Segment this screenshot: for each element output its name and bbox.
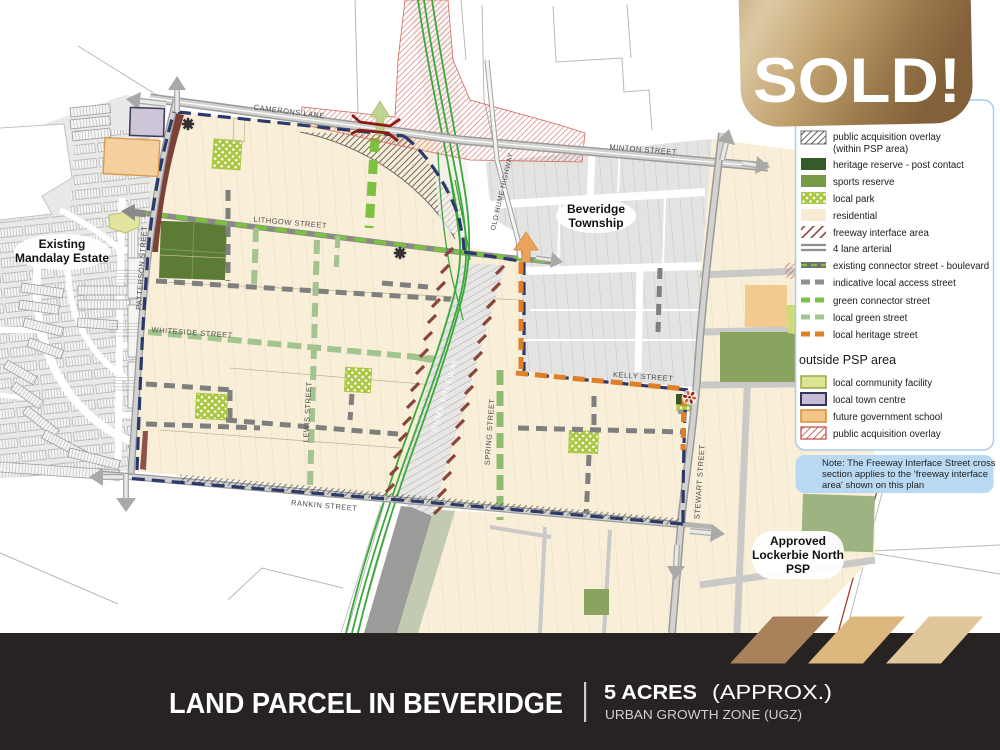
svg-text:Mandalay Estate: Mandalay Estate: [15, 251, 109, 265]
svg-text:local green street: local green street: [833, 313, 908, 324]
svg-text:URBAN GROWTH ZONE (UGZ): URBAN GROWTH ZONE (UGZ): [605, 708, 802, 722]
svg-text:existing connector street - bo: existing connector street - boulevard: [833, 261, 989, 272]
svg-text:Note: The Freeway Interface St: Note: The Freeway Interface Street cross: [822, 458, 996, 469]
svg-text:section applies to the 'freewa: section applies to the 'freeway interfac…: [822, 469, 988, 480]
svg-text:Township: Township: [568, 216, 623, 230]
svg-text:5 ACRES: 5 ACRES: [604, 682, 697, 704]
svg-text:outside PSP area: outside PSP area: [799, 353, 896, 367]
svg-text:indicative local access street: indicative local access street: [833, 278, 956, 289]
svg-text:local community facility: local community facility: [833, 378, 932, 389]
svg-text:local heritage street: local heritage street: [833, 330, 918, 341]
svg-text:public acquisition overlay: public acquisition overlay: [833, 429, 941, 440]
svg-text:public acquisition overlay: public acquisition overlay: [833, 132, 941, 143]
svg-text:4 lane arterial: 4 lane arterial: [833, 244, 892, 255]
svg-text:(APPROX.): (APPROX.): [712, 682, 832, 704]
svg-text:(within PSP area): (within PSP area): [833, 144, 908, 155]
svg-text:Approved: Approved: [770, 534, 826, 548]
svg-text:heritage reserve - post contac: heritage reserve - post contact: [833, 160, 964, 171]
svg-text:Existing: Existing: [39, 237, 86, 251]
svg-text:green connector street: green connector street: [833, 296, 930, 307]
svg-text:area' shown on this plan: area' shown on this plan: [822, 480, 924, 491]
svg-text:residential: residential: [833, 211, 877, 222]
svg-text:SOLD!: SOLD!: [753, 46, 961, 116]
svg-text:PSP: PSP: [786, 562, 810, 576]
svg-text:LAND PARCEL IN BEVERIDGE: LAND PARCEL IN BEVERIDGE: [169, 688, 563, 720]
svg-text:freeway interface area: freeway interface area: [833, 228, 929, 239]
svg-text:local town centre: local town centre: [833, 395, 906, 406]
svg-text:Beveridge: Beveridge: [567, 202, 625, 216]
svg-text:sports reserve: sports reserve: [833, 177, 894, 188]
svg-text:local park: local park: [833, 194, 875, 205]
svg-text:Lockerbie North: Lockerbie North: [752, 548, 844, 562]
svg-text:future government school: future government school: [833, 412, 942, 423]
